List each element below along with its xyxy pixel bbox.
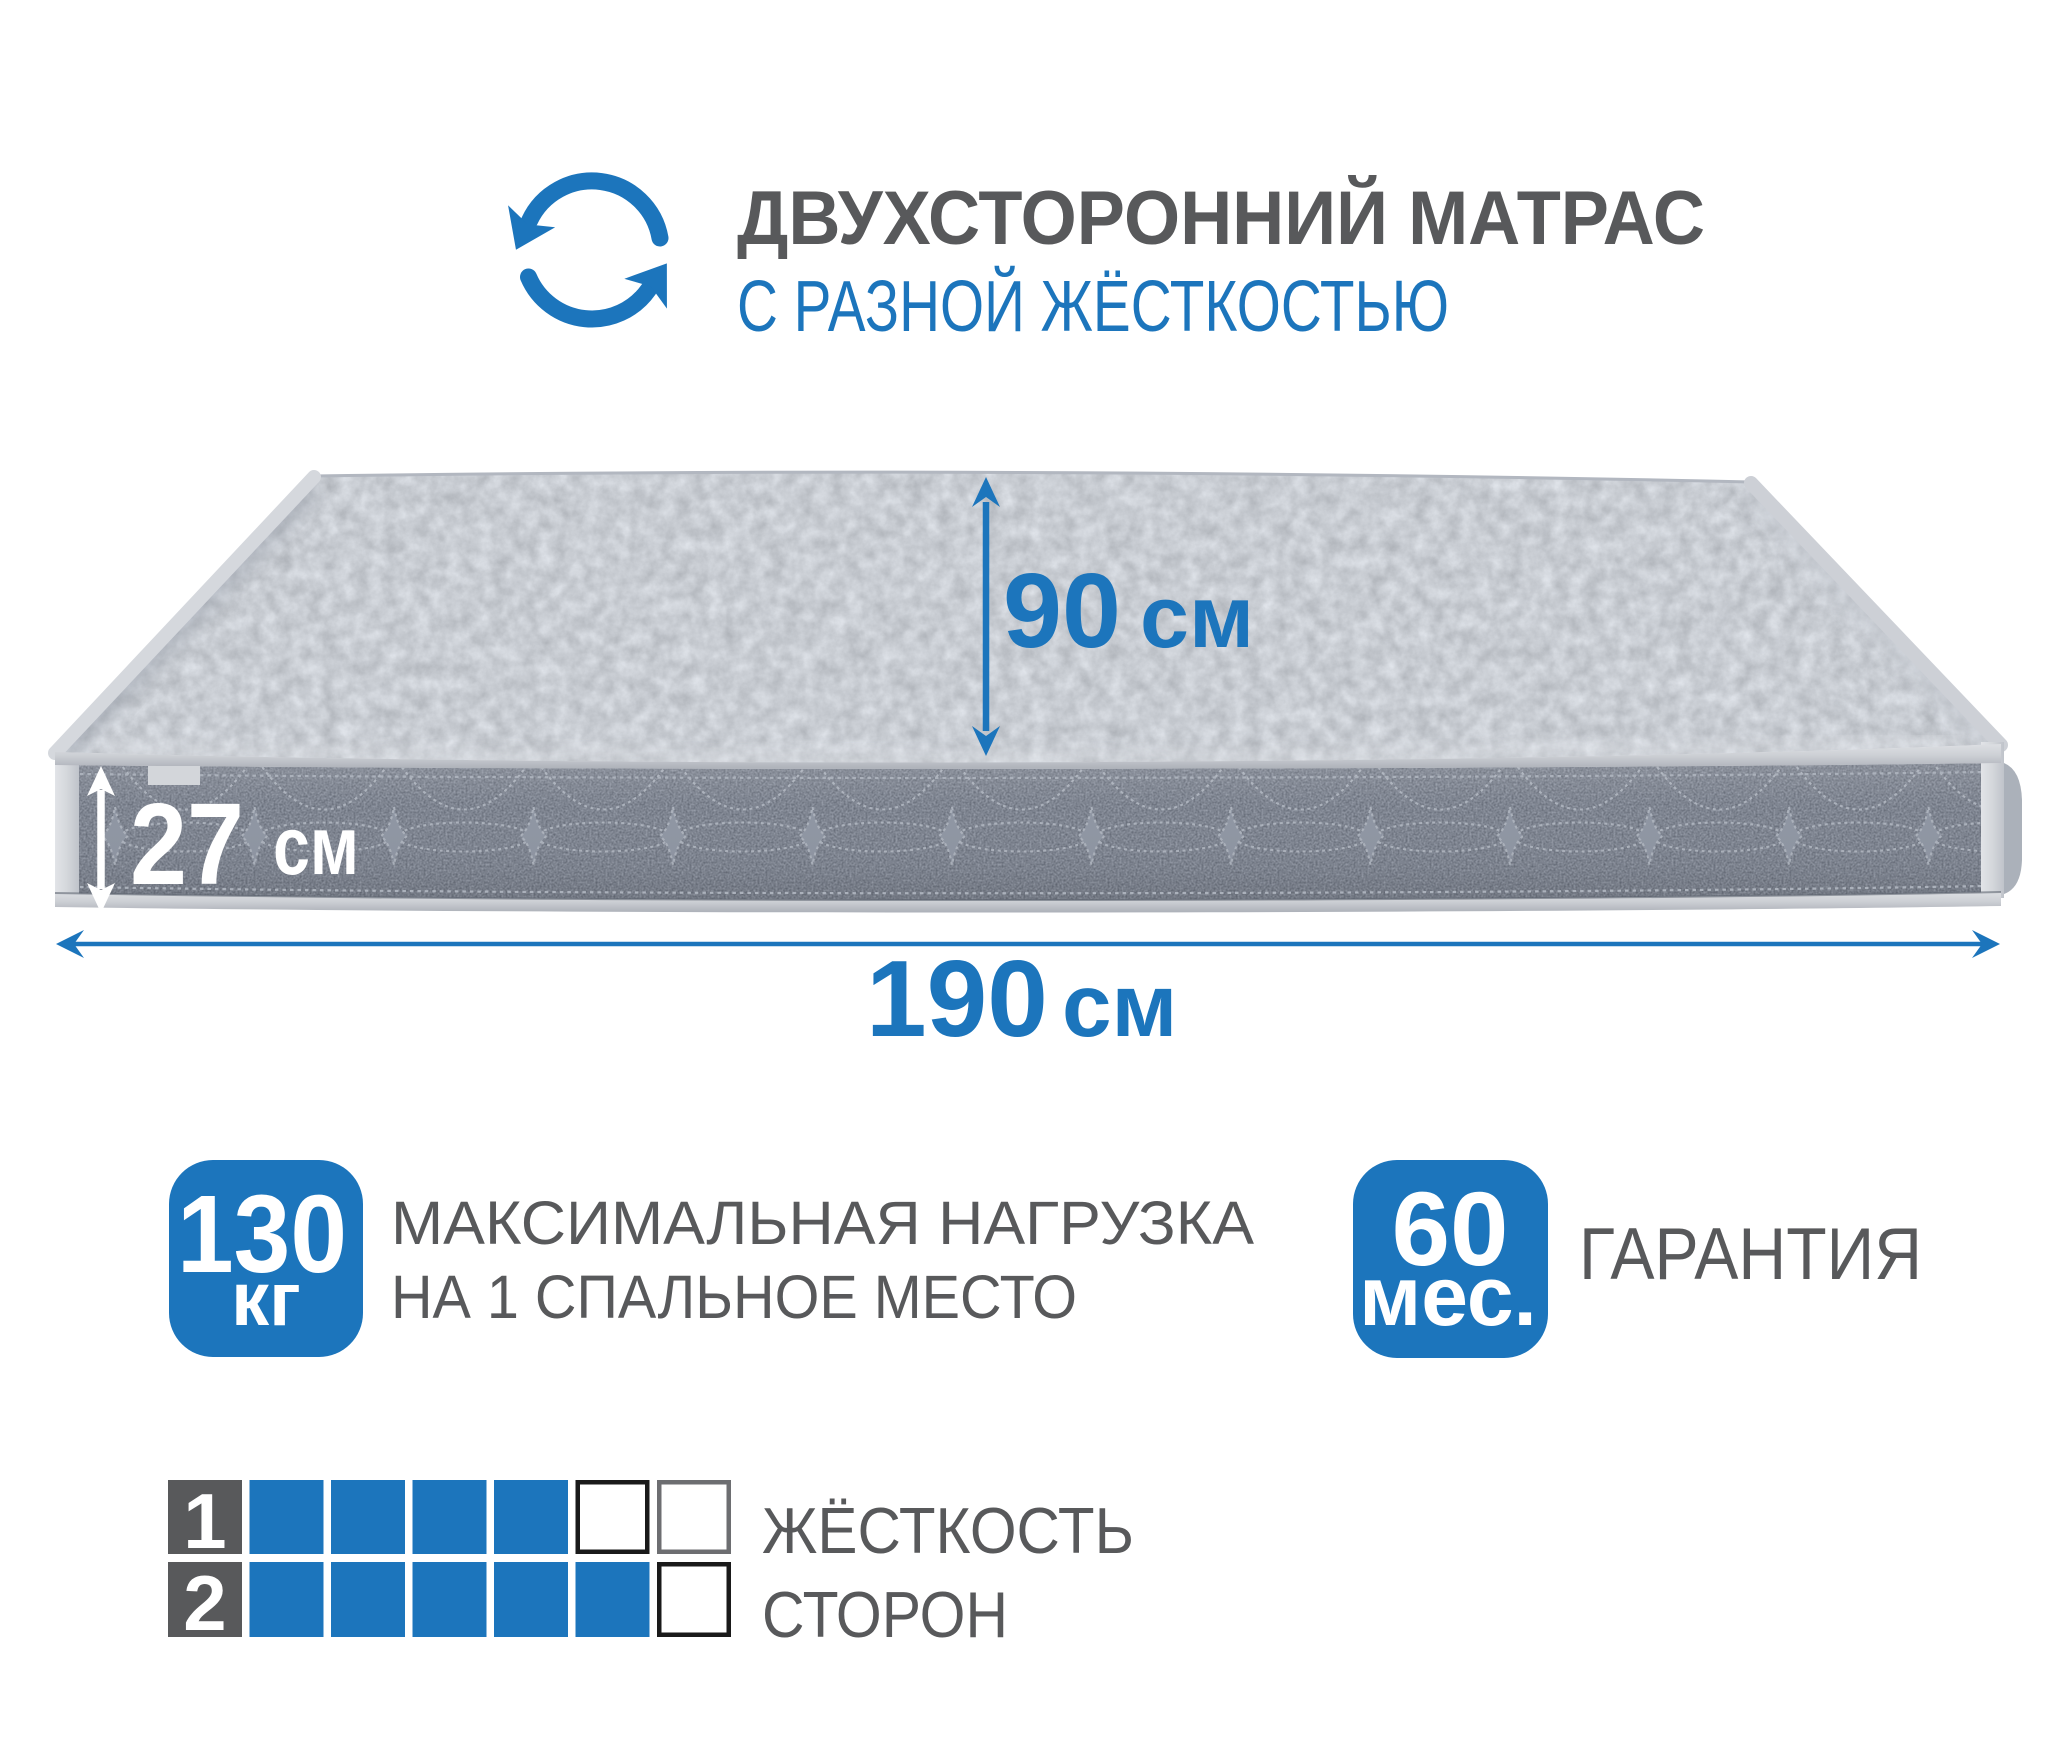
svg-text:ДВУХСТОРОННИЙ МАТРАС: ДВУХСТОРОННИЙ МАТРАС (737, 175, 1705, 261)
svg-text:СТОРОН: СТОРОН (762, 1578, 1008, 1651)
svg-text:кг: кг (231, 1257, 301, 1342)
svg-text:ГАРАНТИЯ: ГАРАНТИЯ (1579, 1214, 1922, 1295)
svg-text:НА 1 СПАЛЬНОЕ МЕСТО: НА 1 СПАЛЬНОЕ МЕСТО (391, 1263, 1077, 1331)
svg-text:2: 2 (183, 1559, 226, 1647)
svg-text:190: 190 (866, 938, 1048, 1060)
svg-text:90: 90 (1003, 552, 1121, 670)
svg-text:ЖЁСТКОСТЬ: ЖЁСТКОСТЬ (762, 1494, 1134, 1567)
svg-text:мес.: мес. (1359, 1249, 1537, 1343)
svg-text:27: 27 (130, 779, 244, 909)
svg-text:см: см (1140, 567, 1254, 666)
svg-text:см: см (1062, 955, 1177, 1055)
svg-text:С РАЗНОЙ ЖЁСТКОСТЬЮ: С РАЗНОЙ ЖЁСТКОСТЬЮ (737, 265, 1449, 347)
svg-text:см: см (273, 799, 359, 892)
svg-text:МАКСИМАЛЬНАЯ НАГРУЗКА: МАКСИМАЛЬНАЯ НАГРУЗКА (391, 1189, 1254, 1257)
svg-text:1: 1 (183, 1477, 226, 1565)
